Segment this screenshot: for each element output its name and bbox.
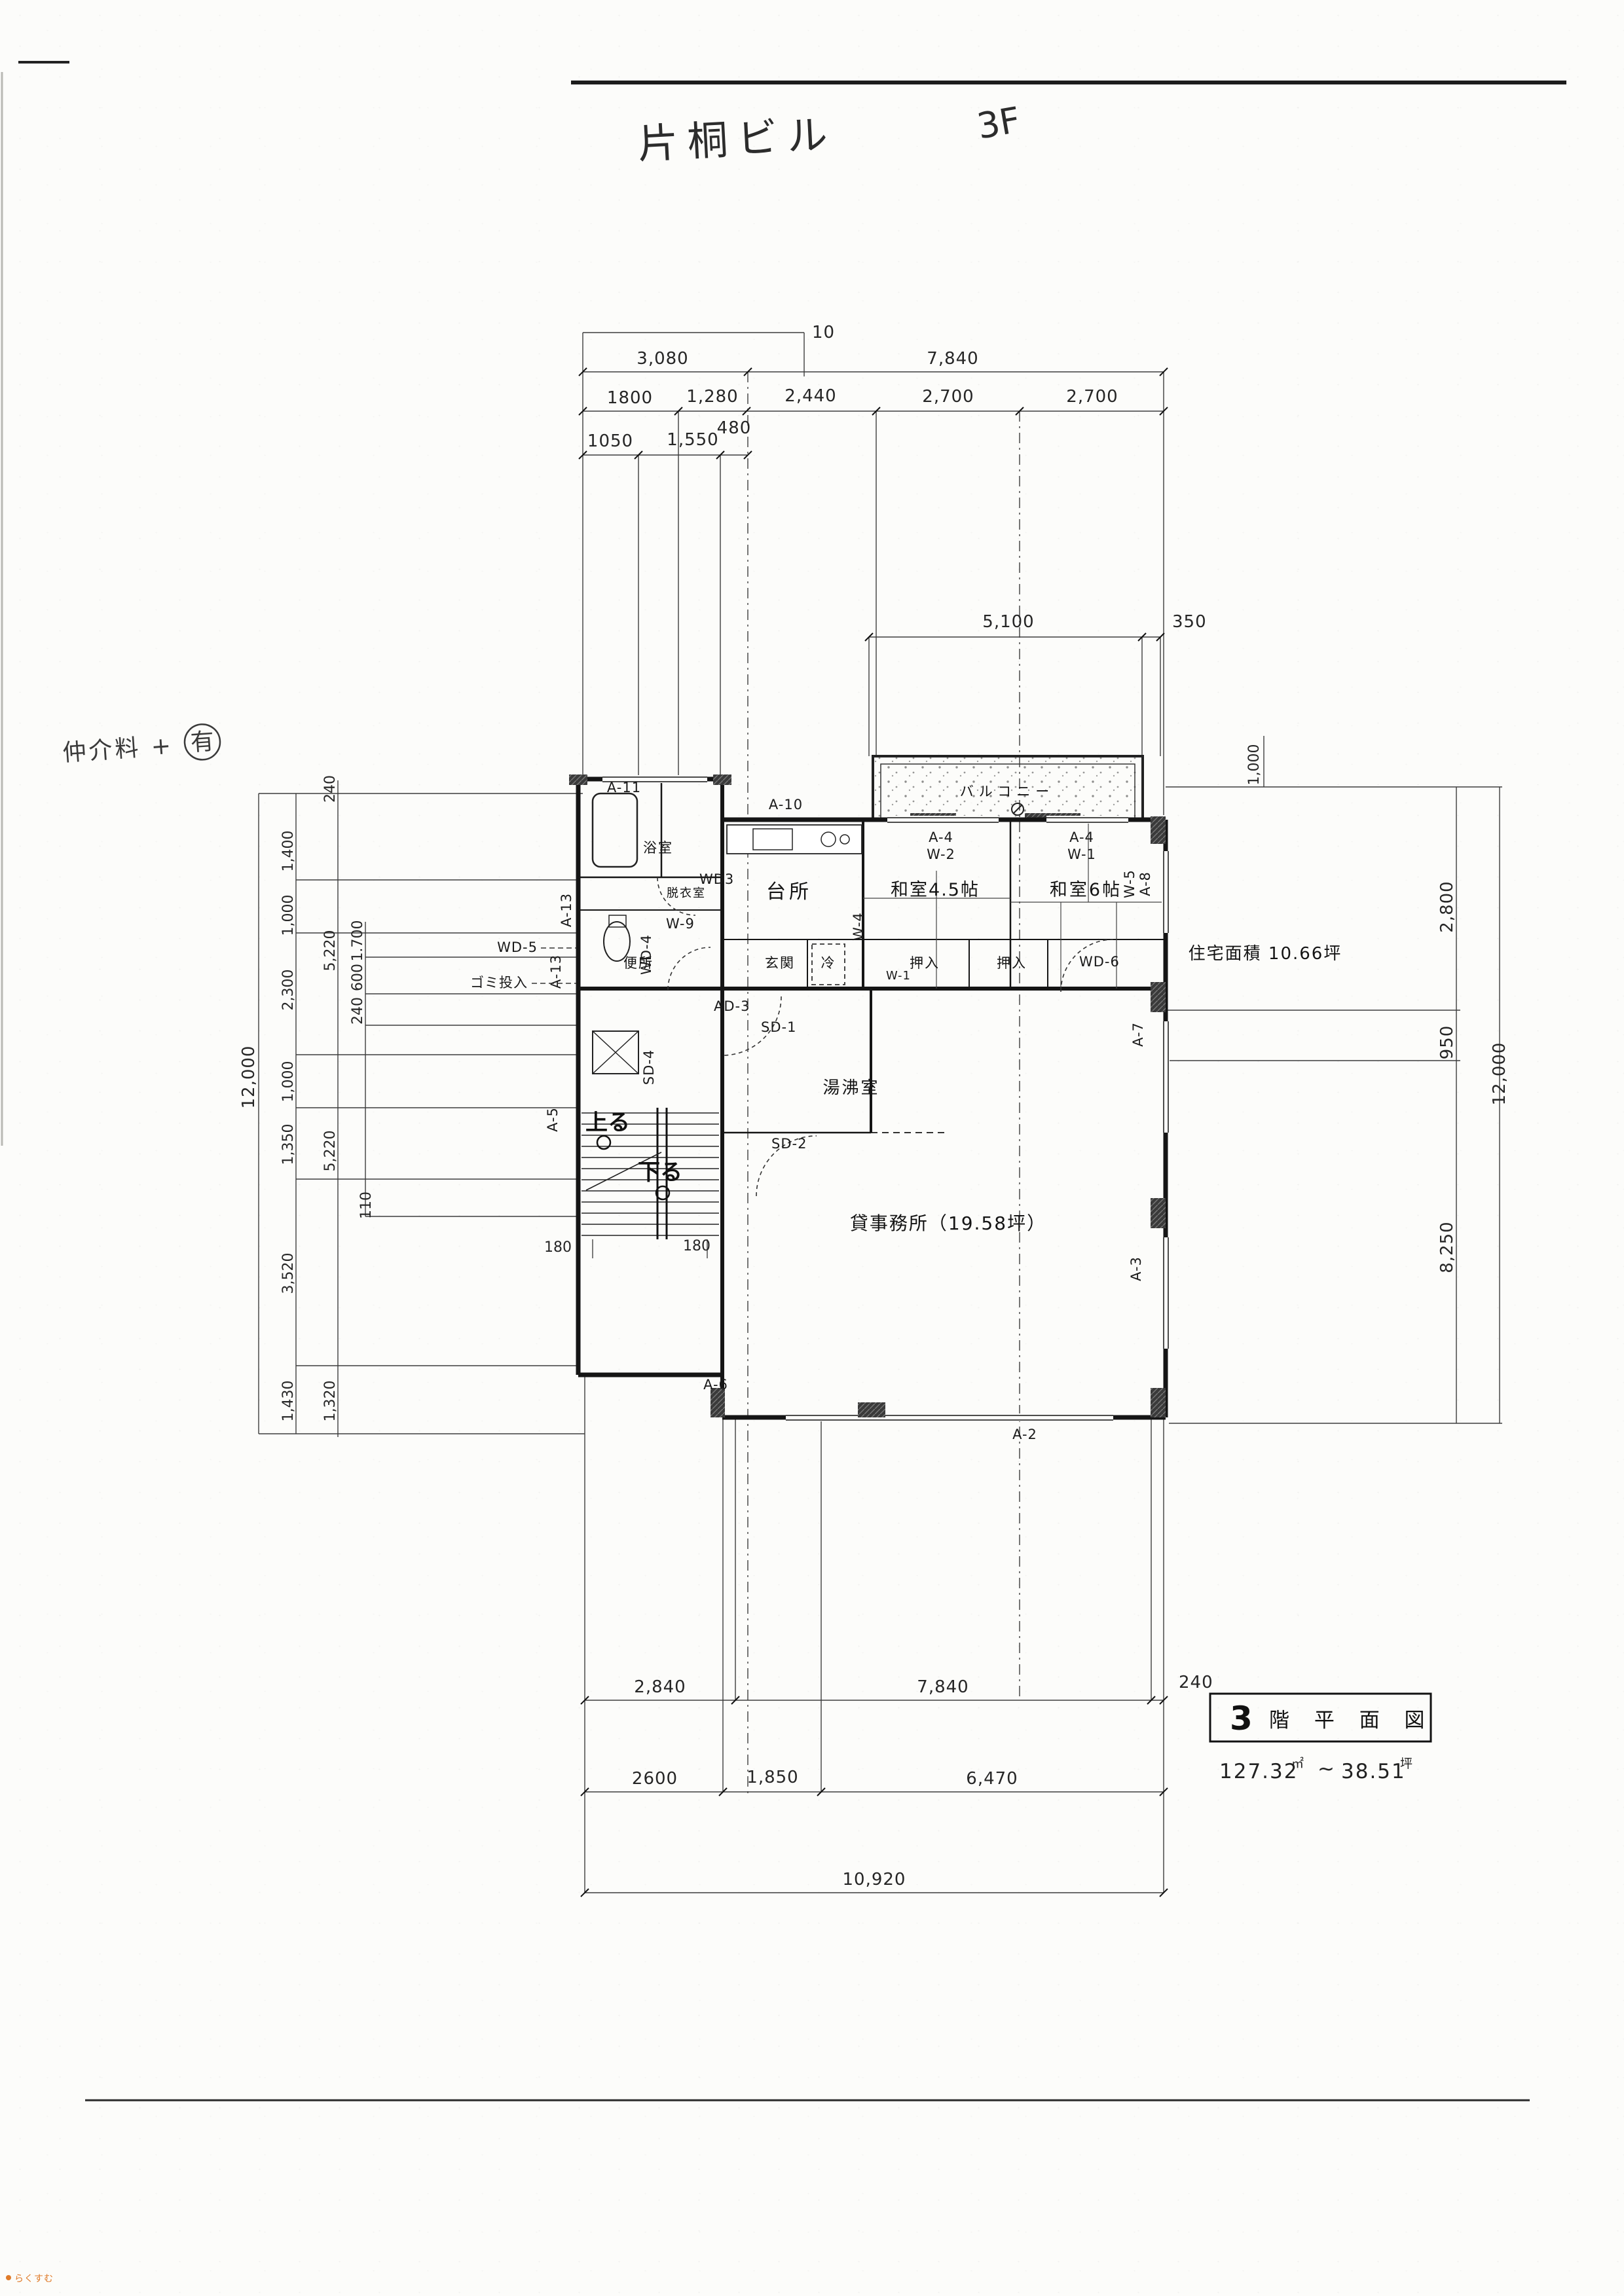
label-a4-2: A-4 (1069, 829, 1094, 845)
dim-2700-a: 2,700 (922, 387, 974, 407)
label-a4-1: A-4 (929, 829, 953, 845)
label-wd5: WD-5 (497, 939, 538, 955)
dim-240-top: 240 (322, 775, 339, 803)
kitchen-label: 台所 (766, 881, 812, 903)
dim-180-right: 180 (683, 1238, 710, 1254)
label-w2: W-2 (927, 847, 955, 862)
residence-area-label: 住宅面積 10.66坪 (1189, 944, 1342, 964)
label-w1: W-1 (1067, 847, 1096, 862)
label-wd6: WD-6 (1079, 954, 1120, 970)
floor-label-handwritten: 3F (974, 99, 1023, 147)
fixture-labels: A-11 A-10 A-4 W-2 A-4 W-1 W-5 A-8 A-7 A-… (470, 780, 1153, 1442)
top-dimension-labels: 10 3,080 7,840 1800 1,280 2,440 2,700 2,… (587, 323, 1263, 785)
dim-1400: 1,400 (280, 831, 297, 872)
margin-note-group: 仲介料 + 有 (62, 723, 221, 770)
label-a13-a: A-13 (559, 893, 574, 927)
room-labels: 台所 和室4.5帖 和室6帖 浴室 脱衣室 便所 玄関 冷 押入 押入 湯沸室 … (623, 840, 1342, 1234)
dim-600: 600 (350, 964, 366, 991)
label-w5: W-5 (1122, 869, 1137, 898)
dim-240-mid: 240 (350, 997, 366, 1025)
scan-artifacts (2, 62, 1566, 2100)
staircase: 上る 下る 180 180 (544, 1108, 719, 1258)
watermark-text: らくすむ (14, 2274, 54, 2284)
dim-5100: 5,100 (982, 612, 1034, 632)
title-block-floor-number: 3 (1230, 1700, 1253, 1738)
closet1-label: 押入 (910, 955, 940, 971)
bath-fixtures (593, 793, 638, 1074)
area-m2-value: 127.32 (1219, 1760, 1298, 1783)
label-sd1: SD-1 (761, 1019, 796, 1035)
dim-1850: 1,850 (747, 1768, 798, 1787)
kitchen-counter (727, 825, 862, 854)
dim-1350: 1,350 (280, 1124, 297, 1165)
building-title-handwritten: 片桐ビル (637, 110, 838, 168)
tatami45-label: 和室4.5帖 (891, 880, 980, 900)
walls (578, 779, 1166, 1417)
door-arc-ad3 (668, 947, 710, 990)
label-sd4: SD-4 (641, 1049, 657, 1085)
title-block: 3 階 平 面 図 127.32 ㎡ ~ 38.51 坪 (1210, 1694, 1434, 1783)
dim-1320: 1,320 (322, 1381, 339, 1422)
dim-1550: 1,550 (667, 430, 718, 450)
bathtub (593, 793, 637, 867)
dim-240-bottom: 240 (1179, 1673, 1213, 1692)
dim-950: 950 (1437, 1025, 1457, 1060)
dim-5220-b: 5,220 (322, 1131, 339, 1172)
scanned-floor-plan-page: 片桐ビル 3F 仲介料 + 有 10 (0, 0, 1624, 2296)
top-dimension-ticks (579, 368, 1168, 641)
area-tilde: ~ (1318, 1757, 1336, 1781)
dim-2440: 2,440 (784, 386, 836, 406)
dim-1050: 1050 (587, 431, 633, 451)
label-a10: A-10 (769, 797, 803, 812)
dim-1000-balcony: 1,000 (1246, 744, 1263, 786)
dim-6470: 6,470 (966, 1769, 1018, 1789)
watermark-group: らくすむ (6, 2274, 54, 2284)
area-m2-unit: ㎡ (1291, 1756, 1304, 1771)
bath-label: 浴室 (643, 840, 673, 856)
dim-350: 350 (1172, 612, 1207, 632)
bottom-dimension-lines (585, 1375, 1164, 1893)
dim-12000-right: 12,000 (1490, 1042, 1509, 1106)
dim-110: 110 (358, 1192, 375, 1219)
area-tsubo-value: 38.51 (1341, 1760, 1406, 1783)
stairs-up-marker (597, 1136, 610, 1149)
dim-3520: 3,520 (280, 1253, 297, 1294)
label-wd4: WD-4 (638, 934, 654, 975)
dim-2800: 2,800 (1437, 881, 1457, 932)
dim-5220-a: 5,220 (322, 930, 339, 972)
left-dimension-labels: 12,000 1,400 1,000 2,300 1,000 1,350 3,5… (239, 775, 375, 1421)
label-wd3: WD3 (699, 871, 734, 887)
floor-plan-drawing: 片桐ビル 3F 仲介料 + 有 10 (0, 0, 1624, 2296)
stairs-down-label: 下る (638, 1159, 682, 1186)
dim-7840-top: 7,840 (927, 349, 978, 369)
dim-12000-left: 12,000 (239, 1046, 259, 1109)
dim-1700: 1.700 (350, 920, 366, 962)
fridge-label: 冷 (821, 955, 836, 971)
dim-2840: 2,840 (634, 1677, 686, 1697)
dressing-label: 脱衣室 (667, 886, 706, 900)
dim-8250: 8,250 (1437, 1221, 1457, 1273)
tatami6-label: 和室6帖 (1050, 880, 1122, 900)
label-w4: W-4 (851, 912, 866, 941)
dim-2700-b: 2,700 (1066, 387, 1118, 407)
right-dimension-labels: 2,800 950 8,250 12,000 (1437, 881, 1509, 1273)
area-tsubo-unit: 坪 (1400, 1757, 1412, 1771)
handwritten-title-group: 片桐ビル 3F (637, 99, 1024, 168)
window-symbols (602, 775, 1170, 1421)
dim-3080: 3,080 (637, 349, 688, 369)
label-a2: A-2 (1012, 1427, 1037, 1442)
dim-1430: 1,430 (280, 1381, 297, 1422)
bottom-dimension-ticks (581, 1696, 1168, 1897)
note-circle-char: 有 (190, 728, 215, 756)
dim-2600: 2600 (632, 1769, 678, 1789)
label-a5: A-5 (545, 1107, 561, 1132)
watermark-dot (6, 2275, 11, 2280)
dim-2300: 2,300 (280, 970, 297, 1011)
bottom-dimension-labels: 2,840 7,840 240 2600 1,850 6,470 10,920 (632, 1673, 1213, 1889)
label-a3: A-3 (1128, 1256, 1144, 1281)
dim-10920: 10,920 (843, 1870, 906, 1889)
label-a7: A-7 (1130, 1022, 1146, 1047)
office-label: 貸事務所（19.58坪） (850, 1212, 1046, 1234)
dim-480: 480 (717, 418, 752, 438)
dim-7840-bottom: 7,840 (917, 1677, 969, 1697)
dim-1800: 1800 (607, 388, 653, 408)
title-block-title: 階 平 面 図 (1269, 1709, 1434, 1732)
label-w9: W-9 (666, 916, 695, 932)
hot-water-label: 湯沸室 (822, 1078, 879, 1098)
dim-180-left: 180 (544, 1239, 572, 1256)
door-arcs (657, 877, 1113, 1196)
label-a11: A-11 (607, 780, 641, 795)
label-ad3: AD-3 (714, 998, 750, 1014)
closet2-label: 押入 (997, 955, 1027, 971)
label-a8: A-8 (1137, 871, 1153, 896)
balcony-label: バルコニー (960, 784, 1055, 799)
dim-1000-b: 1,000 (280, 1061, 297, 1102)
label-sd2: SD-2 (771, 1136, 807, 1152)
dim-1280: 1,280 (686, 387, 738, 407)
brokerage-note: 仲介料 + (62, 733, 174, 767)
stairs-up-label: 上る (585, 1110, 630, 1136)
label-a6: A-6 (703, 1377, 728, 1393)
dim-1000-a: 1,000 (280, 895, 297, 936)
chute-note-label: ゴミ投入 (470, 975, 528, 991)
grid-label-10: 10 (812, 323, 835, 342)
entrance-label: 玄関 (765, 955, 795, 971)
left-dimension-lines (259, 780, 585, 1437)
label-w1b: W-1 (886, 969, 911, 983)
balcony-group: バルコニー (873, 756, 1143, 820)
